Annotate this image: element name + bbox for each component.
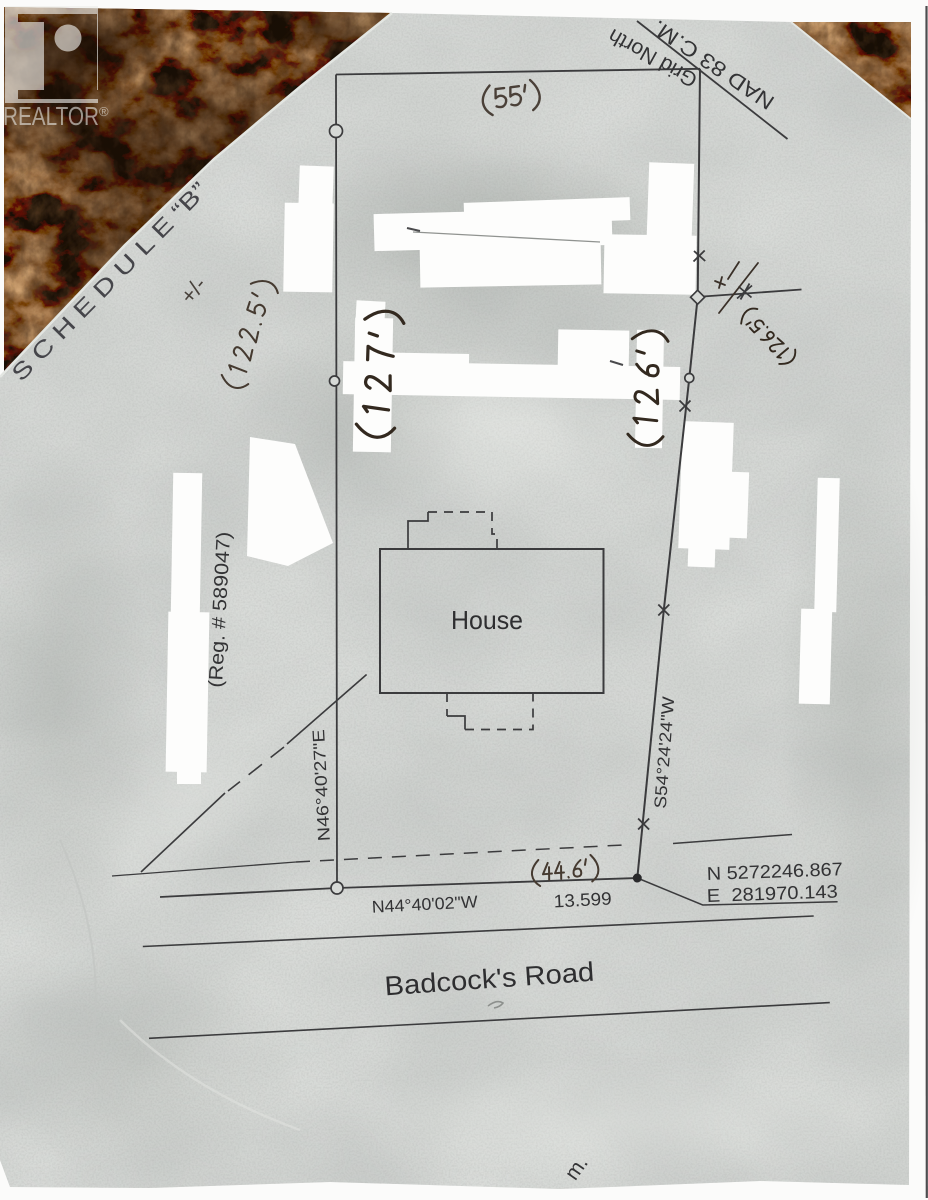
svg-text:House: House — [451, 605, 523, 635]
svg-text:REALTOR: REALTOR — [3, 101, 99, 131]
svg-text:13.599: 13.599 — [553, 889, 612, 912]
svg-text:®: ® — [99, 104, 109, 119]
